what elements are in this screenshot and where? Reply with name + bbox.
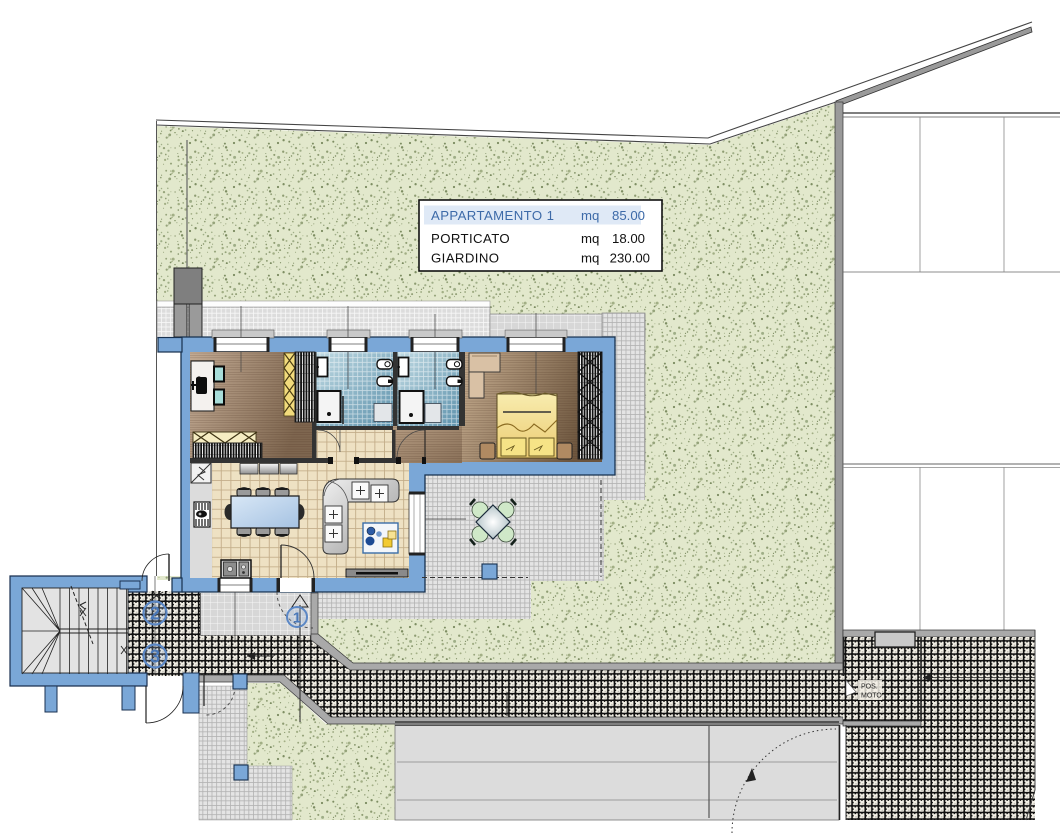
svg-text:APPARTAMENTO 1: APPARTAMENTO 1 (431, 208, 554, 223)
svg-text:mq: mq (581, 231, 599, 246)
svg-text:POS.: POS. (861, 684, 878, 691)
svg-text:GIARDINO: GIARDINO (431, 251, 499, 266)
svg-text:2: 2 (150, 604, 160, 624)
svg-text:3: 3 (150, 647, 160, 667)
svg-text:18.00: 18.00 (612, 231, 645, 246)
svg-text:mq: mq (581, 251, 599, 266)
svg-text:230.00: 230.00 (610, 251, 650, 266)
svg-text:MOTO: MOTO (861, 693, 882, 700)
svg-text:1: 1 (293, 610, 301, 627)
svg-text:85.00: 85.00 (612, 208, 645, 223)
svg-text:PORTICATO: PORTICATO (431, 231, 510, 246)
svg-text:mq: mq (581, 208, 599, 223)
